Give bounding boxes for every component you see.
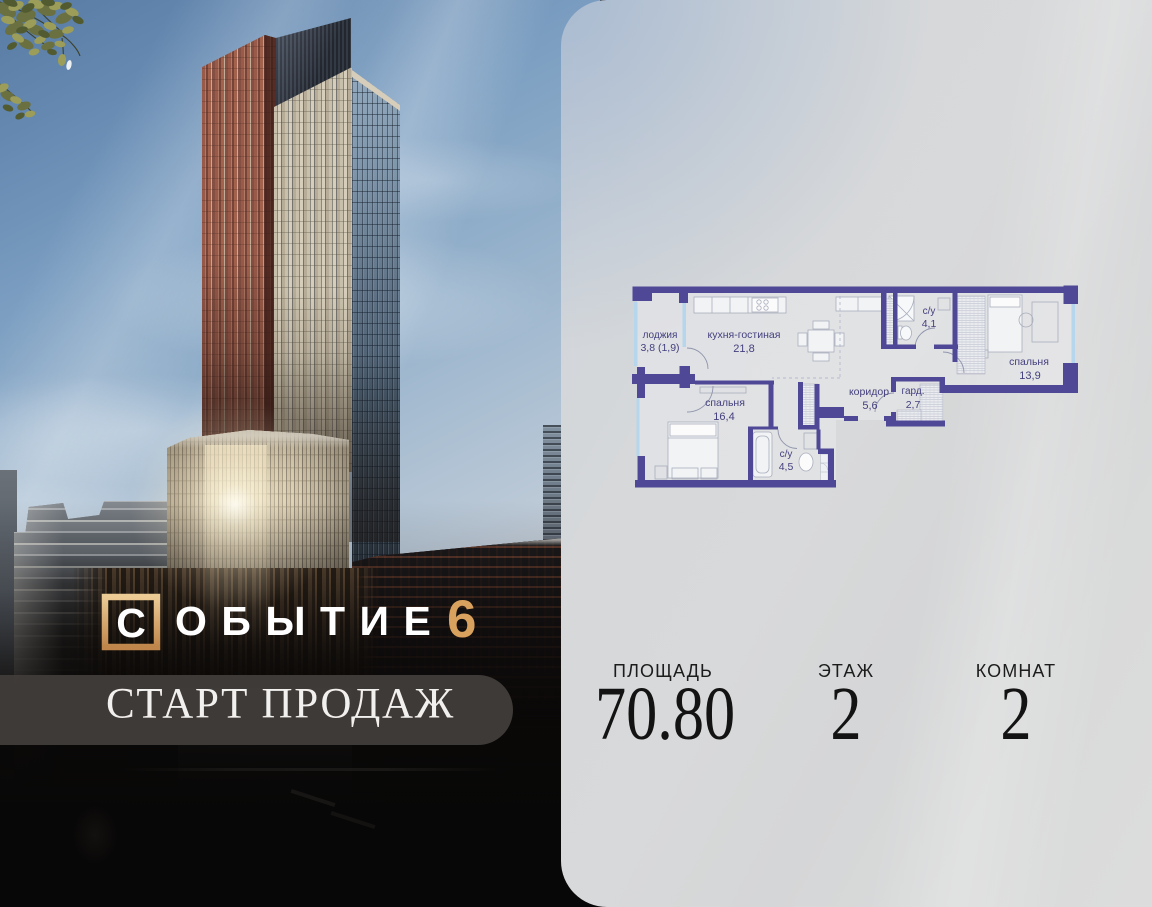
svg-text:гард.: гард. <box>902 386 925 397</box>
svg-text:21,8: 21,8 <box>733 343 754 355</box>
svg-text:4,1: 4,1 <box>922 318 937 330</box>
svg-text:кухня-гостиная: кухня-гостиная <box>708 329 781 341</box>
svg-text:3,8 (1,9): 3,8 (1,9) <box>640 342 679 354</box>
svg-text:коридор: коридор <box>849 386 889 398</box>
svg-text:лоджия: лоджия <box>643 330 678 341</box>
svg-text:5,6: 5,6 <box>862 400 877 412</box>
svg-text:спальня: спальня <box>1009 356 1049 368</box>
svg-text:4,5: 4,5 <box>779 461 794 473</box>
svg-text:с/у: с/у <box>923 306 936 317</box>
svg-text:С: С <box>116 600 146 646</box>
svg-text:13,9: 13,9 <box>1019 370 1040 382</box>
svg-text:с/у: с/у <box>780 449 793 460</box>
svg-text:16,4: 16,4 <box>713 411 734 423</box>
svg-text:спальня: спальня <box>705 397 745 409</box>
svg-text:2,7: 2,7 <box>906 399 921 411</box>
